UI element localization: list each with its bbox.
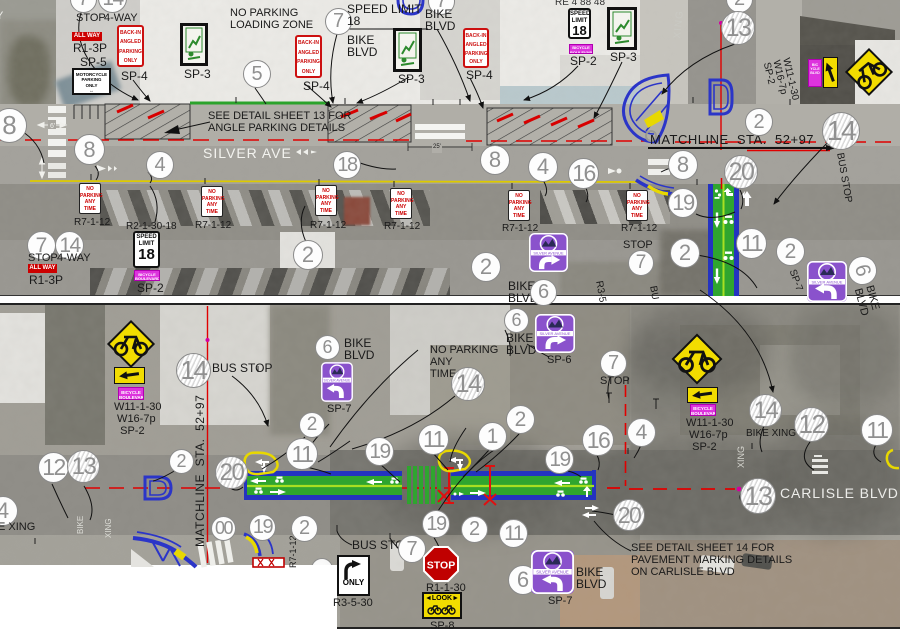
svg-text:SILVER AVENUE: SILVER AVENUE [536,570,569,575]
svg-text:6': 6' [50,123,55,130]
svg-text:SILVER AVENUE: SILVER AVENUE [324,379,352,383]
svg-text:STOP: STOP [427,560,455,572]
svg-text:SILVER AVENUE: SILVER AVENUE [533,250,564,255]
svg-text:SILVER AVENUE: SILVER AVENUE [812,280,843,285]
svg-text:SILVER AVENUE: SILVER AVENUE [540,331,571,336]
